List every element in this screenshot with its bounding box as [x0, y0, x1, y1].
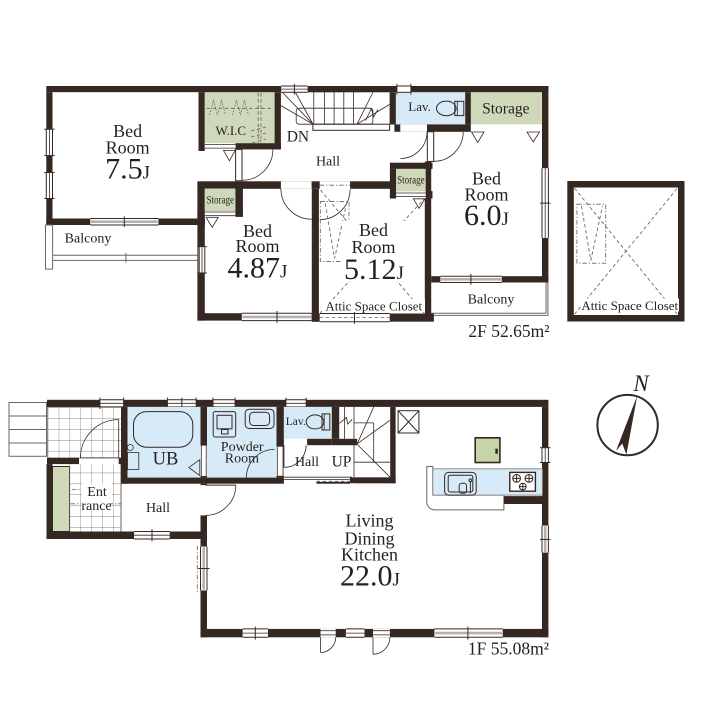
svg-text:4.87J: 4.87J	[228, 252, 288, 285]
svg-text:Hall: Hall	[316, 154, 340, 169]
svg-text:2F 52.65m²: 2F 52.65m²	[468, 321, 549, 341]
svg-text:UP: UP	[332, 454, 352, 471]
svg-text:Attic Space Closet: Attic Space Closet	[325, 299, 422, 314]
svg-text:Storage: Storage	[397, 173, 425, 187]
svg-text:1F 55.08m²: 1F 55.08m²	[468, 639, 549, 659]
svg-text:Lav.: Lav.	[286, 416, 306, 428]
svg-text:N: N	[632, 371, 650, 396]
svg-text:rance: rance	[81, 499, 111, 514]
svg-text:Balcony: Balcony	[468, 293, 515, 308]
svg-text:Hall: Hall	[295, 455, 319, 470]
svg-text:Storage: Storage	[206, 192, 234, 206]
svg-text:W.I.C: W.I.C	[216, 123, 247, 138]
svg-text:Balcony: Balcony	[65, 232, 112, 247]
svg-text:Storage: Storage	[482, 101, 529, 118]
svg-text:22.0J: 22.0J	[340, 560, 400, 593]
svg-text:Living: Living	[346, 510, 394, 530]
svg-text:Hall: Hall	[146, 501, 170, 516]
svg-text:Ent: Ent	[87, 485, 107, 500]
svg-text:Attic Space Closet: Attic Space Closet	[581, 298, 678, 313]
svg-text:DN: DN	[287, 129, 309, 146]
svg-text:UB: UB	[153, 449, 179, 469]
svg-text:5.12J: 5.12J	[344, 253, 404, 286]
svg-text:Lav.: Lav.	[408, 99, 431, 114]
